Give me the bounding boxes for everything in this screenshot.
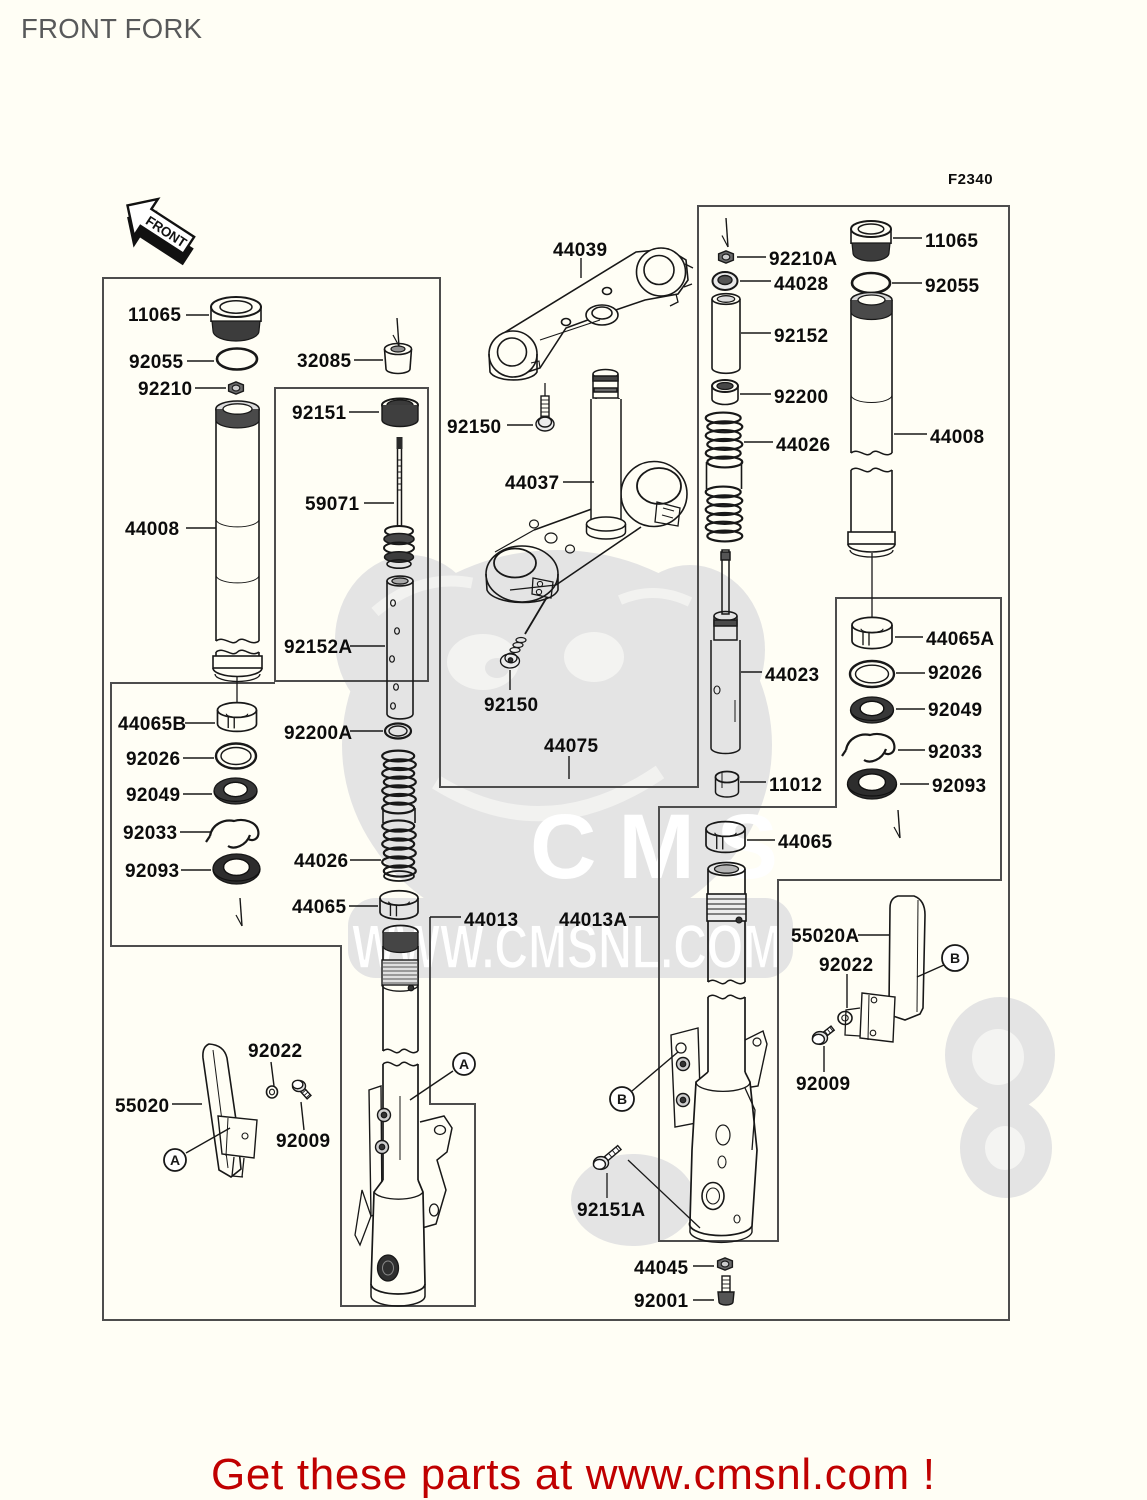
svg-text:92049: 92049: [928, 700, 982, 721]
svg-text:F2340: F2340: [948, 171, 993, 188]
svg-text:92049: 92049: [126, 785, 180, 806]
svg-text:92009: 92009: [796, 1074, 850, 1095]
svg-text:44075: 44075: [544, 736, 598, 757]
svg-text:44037: 44037: [505, 473, 559, 494]
svg-text:92210A: 92210A: [769, 249, 837, 270]
svg-text:92001: 92001: [634, 1291, 688, 1312]
svg-text:92200A: 92200A: [284, 723, 352, 744]
svg-text:44028: 44028: [774, 274, 828, 295]
svg-text:92022: 92022: [248, 1041, 302, 1062]
svg-text:B: B: [617, 1091, 627, 1107]
svg-text:A: A: [459, 1056, 469, 1072]
svg-text:92033: 92033: [928, 742, 982, 763]
svg-text:92055: 92055: [925, 276, 979, 297]
svg-text:11065: 11065: [925, 231, 978, 252]
svg-text:92150: 92150: [484, 695, 538, 716]
svg-text:11065: 11065: [128, 305, 181, 326]
svg-text:44023: 44023: [765, 665, 819, 686]
svg-text:44065: 44065: [778, 832, 832, 853]
svg-text:55020A: 55020A: [791, 926, 859, 947]
svg-text:92033: 92033: [123, 823, 177, 844]
svg-text:44026: 44026: [294, 851, 348, 872]
svg-text:44013A: 44013A: [559, 910, 627, 931]
svg-text:92151: 92151: [292, 403, 346, 424]
svg-text:92026: 92026: [126, 749, 180, 770]
svg-text:92151A: 92151A: [577, 1200, 645, 1221]
svg-text:44008: 44008: [125, 519, 179, 540]
svg-text:92009: 92009: [276, 1131, 330, 1152]
svg-text:55020: 55020: [115, 1096, 169, 1117]
svg-text:44039: 44039: [553, 240, 607, 261]
svg-text:92150: 92150: [447, 417, 501, 438]
svg-text:92152A: 92152A: [284, 637, 352, 658]
svg-text:92022: 92022: [819, 955, 873, 976]
svg-text:92093: 92093: [932, 776, 986, 797]
svg-text:92200: 92200: [774, 387, 828, 408]
svg-text:11012: 11012: [769, 775, 822, 796]
svg-text:92026: 92026: [928, 663, 982, 684]
svg-text:CMS: CMS: [530, 796, 780, 898]
svg-text:59071: 59071: [305, 494, 359, 515]
svg-text:44065B: 44065B: [118, 714, 186, 735]
svg-text:92152: 92152: [774, 326, 828, 347]
svg-text:44008: 44008: [930, 427, 984, 448]
svg-text:32085: 32085: [297, 351, 351, 372]
svg-text:44045: 44045: [634, 1258, 688, 1279]
svg-text:92055: 92055: [129, 352, 183, 373]
svg-text:44065A: 44065A: [926, 629, 994, 650]
svg-text:FRONT FORK: FRONT FORK: [21, 13, 203, 44]
svg-text:92210: 92210: [138, 379, 192, 400]
svg-text:44013: 44013: [464, 910, 518, 931]
svg-text:44026: 44026: [776, 435, 830, 456]
svg-text:92093: 92093: [125, 861, 179, 882]
svg-text:B: B: [950, 950, 960, 966]
svg-text:Get these parts at www.cmsnl.c: Get these parts at www.cmsnl.com !: [211, 1450, 935, 1499]
svg-text:A: A: [170, 1152, 180, 1168]
svg-text:44065: 44065: [292, 897, 346, 918]
